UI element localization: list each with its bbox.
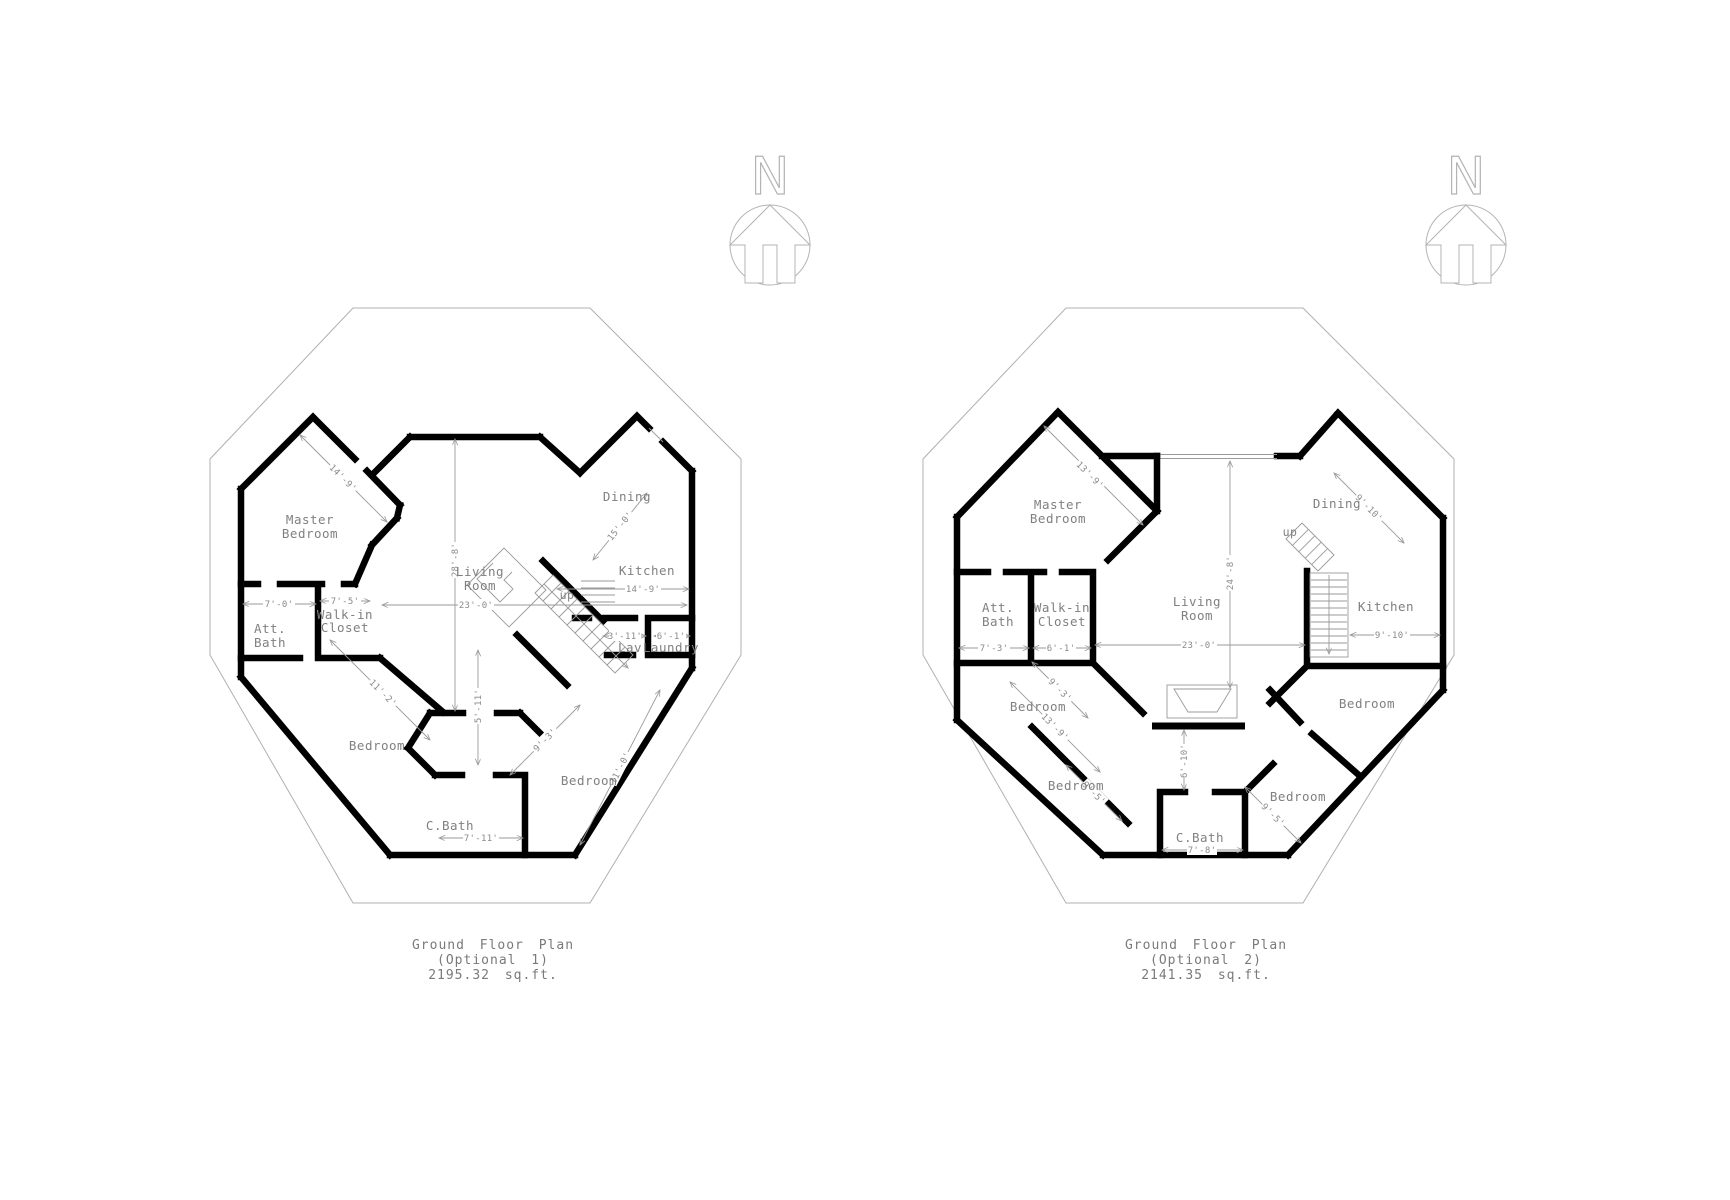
- label-att-bath-2: Bath: [254, 635, 286, 650]
- label-master-2: Bedroom: [282, 526, 338, 541]
- floor-plan-optional-2: 13'-9' 24'-8' 23'-0' 9'-10' 9'-10' 7'-3'…: [918, 303, 1458, 1003]
- dim-master: 14'-9': [326, 461, 360, 495]
- dim-living-v: 24'-8': [1224, 555, 1236, 591]
- label-bedroom-sw: Bedroom: [349, 738, 405, 753]
- svg-text:23'-0': 23'-0': [459, 601, 493, 611]
- label-living-2: Room: [464, 578, 496, 593]
- svg-text:24'-8': 24'-8': [1226, 556, 1236, 590]
- label-att-bath-2: Bath: [982, 614, 1014, 629]
- dim-living-h: 23'-0': [1181, 639, 1217, 651]
- svg-text:7'-8': 7'-8': [1188, 846, 1217, 856]
- dim-cbath-v: 5'-11': [472, 688, 484, 724]
- svg-text:15'-0': 15'-0': [606, 510, 635, 543]
- interior-walls: [241, 505, 692, 855]
- window-line: [649, 428, 663, 442]
- label-laundry: Laundry: [643, 640, 699, 655]
- north-letter: N: [1447, 147, 1486, 207]
- label-dining: Dining: [603, 489, 651, 504]
- label-closet-1: Walk-in: [1034, 600, 1090, 615]
- dim-bedroom-s: 9'-5': [1258, 800, 1288, 830]
- label-bedroom-sw: Bedroom: [1048, 778, 1104, 793]
- caption-area: 2195.32 sq.ft.: [428, 968, 558, 983]
- label-dining: Dining: [1313, 496, 1361, 511]
- label-cbath: C.Bath: [426, 818, 474, 833]
- caption-option: (Optional 2): [1150, 953, 1262, 968]
- dim-cbath-h: 7'-11': [463, 832, 499, 844]
- svg-text:13'-9': 13'-9': [1074, 460, 1105, 491]
- floor-plan-optional-1: 14'-9' 15'-0' 28'-8' 23'-0' 14'-9' 7'-0'…: [205, 303, 745, 1003]
- label-living-1: Living: [456, 564, 504, 579]
- label-living-2: Room: [1181, 608, 1213, 623]
- label-att-bath-1: Att.: [254, 621, 286, 636]
- fireplace: [1152, 685, 1245, 726]
- dim-kitchen: 9'-10': [1374, 629, 1410, 641]
- svg-text:14'-9': 14'-9': [327, 463, 358, 494]
- label-bedroom-e: Bedroom: [1339, 696, 1395, 711]
- label-bedroom-se: Bedroom: [561, 773, 617, 788]
- dim-dining: 15'-0': [604, 508, 636, 544]
- label-living-1: Living: [1173, 594, 1221, 609]
- label-closet-2: Closet: [1038, 614, 1086, 629]
- window-lines: [1157, 455, 1277, 459]
- label-up: up: [560, 588, 575, 602]
- dim-bedroom-sw: 11'-2': [366, 676, 400, 710]
- label-bedroom-s: Bedroom: [1270, 789, 1326, 804]
- label-lav: Lav: [618, 640, 642, 655]
- caption-title: Ground Floor Plan: [412, 938, 574, 953]
- label-att-bath-1: Att.: [982, 600, 1014, 615]
- north-compass-right: N: [1420, 142, 1512, 292]
- label-kitchen: Kitchen: [1358, 599, 1414, 614]
- staircase: [1286, 523, 1348, 657]
- drawing-sheet: N N: [0, 0, 1730, 1200]
- label-up: up: [1283, 525, 1298, 539]
- svg-text:14'-9': 14'-9': [626, 585, 660, 595]
- staircase: [535, 575, 633, 673]
- svg-text:11'-2': 11'-2': [367, 678, 398, 709]
- caption-title: Ground Floor Plan: [1125, 938, 1287, 953]
- label-cbath: C.Bath: [1176, 830, 1224, 845]
- label-master-2: Bedroom: [1030, 511, 1086, 526]
- dim-closet: 6'-1': [1046, 642, 1076, 654]
- dim-kitchen: 14'-9': [625, 583, 661, 595]
- svg-text:5'-11': 5'-11': [474, 689, 484, 723]
- svg-text:6'-10': 6'-10': [1180, 744, 1190, 778]
- dim-living-h: 23'-0': [458, 599, 494, 611]
- north-compass-left: N: [724, 142, 816, 292]
- dim-cbath: 7'-8': [1187, 844, 1217, 856]
- dim-closet: 7'-5': [329, 595, 361, 607]
- dim-fireplace: 6'-10': [1178, 744, 1190, 778]
- svg-text:6'-1': 6'-1': [1047, 644, 1076, 654]
- dim-master: 13'-9': [1073, 458, 1107, 492]
- svg-text:7'-5': 7'-5': [331, 597, 360, 607]
- dim-att-bath: 7'-3': [978, 642, 1010, 654]
- north-letter: N: [751, 147, 790, 207]
- label-kitchen: Kitchen: [619, 563, 675, 578]
- svg-text:7'-11': 7'-11': [464, 834, 498, 844]
- svg-text:9'-10': 9'-10': [1375, 631, 1409, 641]
- label-bedroom-w: Bedroom: [1010, 699, 1066, 714]
- svg-text:23'-0': 23'-0': [1182, 641, 1216, 651]
- label-master-1: Master: [1034, 497, 1082, 512]
- svg-text:7'-0': 7'-0': [265, 600, 294, 610]
- label-master-1: Master: [286, 512, 334, 527]
- caption-option: (Optional 1): [437, 953, 549, 968]
- svg-text:7'-3': 7'-3': [980, 644, 1009, 654]
- caption-area: 2141.35 sq.ft.: [1141, 968, 1271, 983]
- label-closet-2: Closet: [321, 620, 369, 635]
- dim-att-bath: 7'-0': [263, 598, 295, 610]
